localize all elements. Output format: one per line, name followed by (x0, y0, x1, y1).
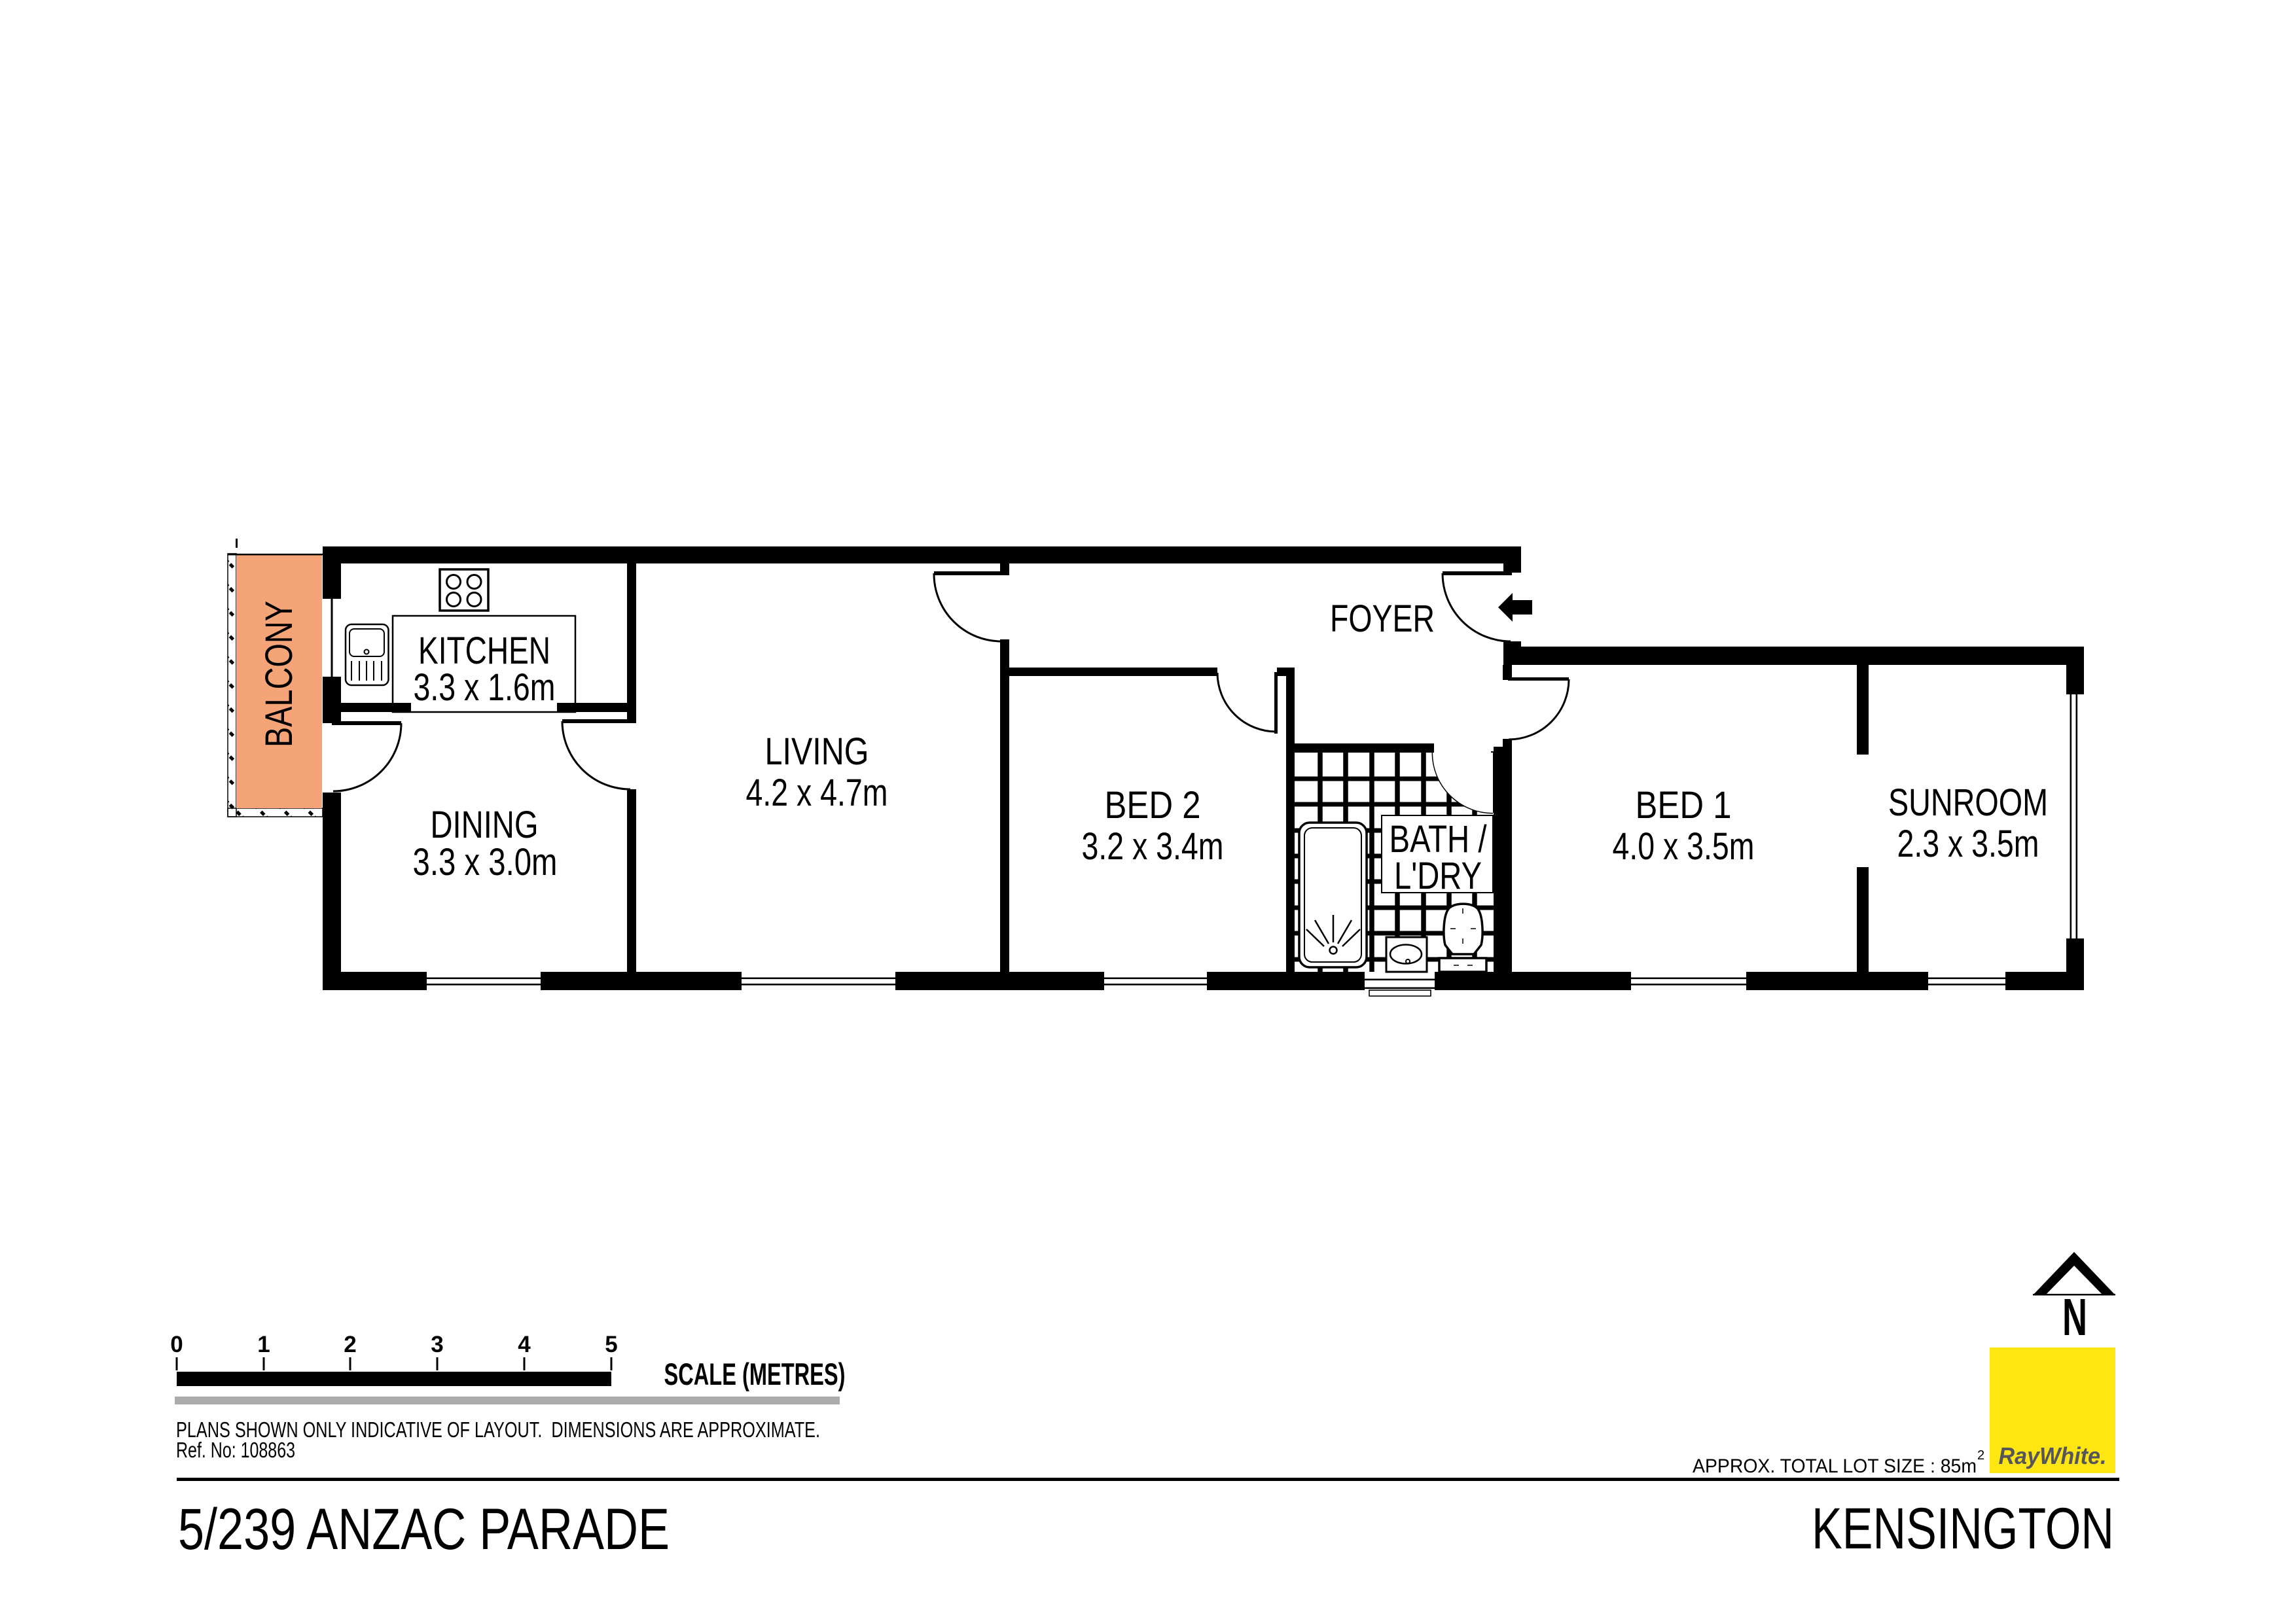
svg-text:APPROX. TOTAL LOT SIZE : 85m: APPROX. TOTAL LOT SIZE : 85m (1693, 1455, 1977, 1477)
svg-text:SCALE (METRES): SCALE (METRES) (664, 1357, 846, 1391)
svg-text:DINING: DINING (431, 804, 539, 846)
svg-text:FOYER: FOYER (1330, 597, 1435, 640)
svg-text:2: 2 (1977, 1448, 1984, 1463)
svg-text:3.3 x 3.0m: 3.3 x 3.0m (413, 841, 558, 883)
svg-text:BED 2: BED 2 (1105, 784, 1201, 827)
svg-text:BED 1: BED 1 (1636, 784, 1732, 827)
svg-text:4.2 x 4.7m: 4.2 x 4.7m (746, 772, 888, 814)
svg-text:3.3 x 1.6m: 3.3 x 1.6m (414, 666, 556, 709)
svg-text:4.0 x 3.5m: 4.0 x 3.5m (1613, 825, 1755, 868)
svg-text:0: 0 (170, 1332, 183, 1357)
svg-text:2: 2 (344, 1332, 356, 1357)
svg-text:3.2 x 3.4m: 3.2 x 3.4m (1082, 825, 1224, 868)
svg-text:4: 4 (518, 1332, 531, 1357)
svg-text:3: 3 (431, 1332, 443, 1357)
svg-text:Ref. No: 108863: Ref. No: 108863 (176, 1438, 295, 1462)
svg-text:LIVING: LIVING (765, 730, 869, 773)
svg-text:SUNROOM: SUNROOM (1888, 781, 2048, 824)
svg-text:5: 5 (605, 1332, 617, 1357)
svg-text:L'DRY: L'DRY (1394, 855, 1482, 897)
svg-text:KENSINGTON: KENSINGTON (1812, 1495, 2114, 1561)
svg-text:N: N (2062, 1288, 2087, 1346)
svg-text:1: 1 (257, 1332, 270, 1357)
svg-text:2.3 x 3.5m: 2.3 x 3.5m (1897, 823, 2039, 865)
svg-text:5/239 ANZAC PARADE: 5/239 ANZAC PARADE (178, 1496, 670, 1561)
svg-text:RayWhite.: RayWhite. (1999, 1442, 2107, 1469)
svg-text:BALCONY: BALCONY (258, 601, 300, 747)
